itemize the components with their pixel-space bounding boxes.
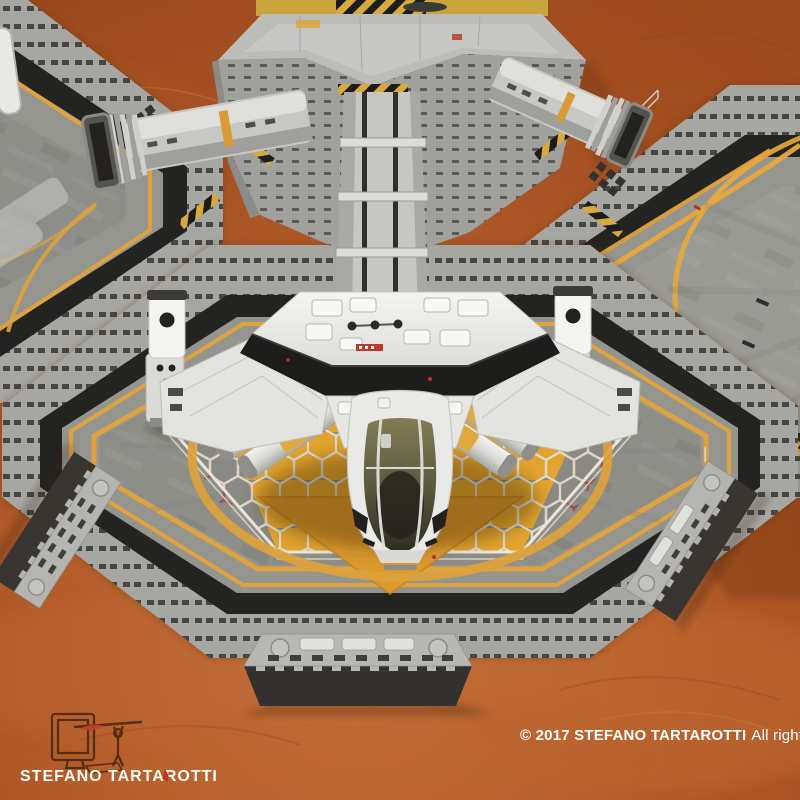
mars-base-3d-render: STEFANO TARTAROTTI © 2017 STEFANO TARTAR… — [0, 0, 800, 800]
copyright-owner: © 2017 STEFANO TARTAROTTI — [520, 727, 746, 744]
copyright-rights: All rights reserved — [751, 727, 800, 744]
copyright-notice: © 2017 STEFANO TARTAROTTIAll rights rese… — [520, 727, 800, 744]
corridor-main — [330, 92, 434, 310]
artist-name: STEFANO TARTAROTTI — [20, 768, 218, 785]
ramp-center — [242, 634, 492, 716]
render-canvas: STEFANO TARTAROTTI © 2017 STEFANO TARTAR… — [0, 0, 800, 800]
